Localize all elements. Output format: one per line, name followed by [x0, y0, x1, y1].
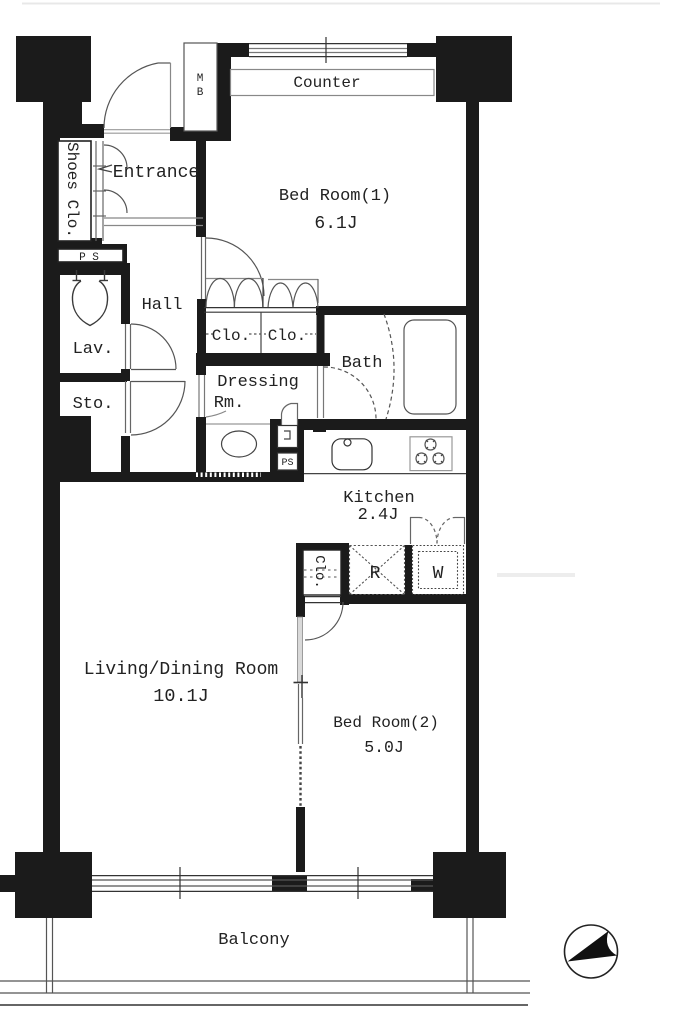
- svg-text:Bed Room(2): Bed Room(2): [333, 714, 439, 732]
- svg-text:Bath: Bath: [342, 354, 383, 373]
- svg-text:P S: P S: [79, 252, 99, 264]
- svg-text:Counter: Counter: [293, 74, 360, 92]
- svg-text:Clo.: Clo.: [311, 555, 327, 589]
- svg-text:Clo.: Clo.: [212, 327, 250, 345]
- svg-text:Rm.: Rm.: [214, 394, 245, 413]
- svg-text:2.4J: 2.4J: [358, 506, 399, 525]
- svg-text:B: B: [197, 87, 204, 99]
- svg-text:6.1J: 6.1J: [314, 214, 357, 234]
- svg-text:M: M: [197, 73, 204, 85]
- svg-text:PS: PS: [281, 458, 293, 469]
- svg-text:Dressing: Dressing: [217, 373, 299, 392]
- svg-text:Bed Room(1): Bed Room(1): [279, 187, 391, 206]
- svg-text:W: W: [433, 564, 444, 584]
- svg-text:Lav.: Lav.: [73, 340, 114, 359]
- svg-text:10.1J: 10.1J: [153, 686, 209, 707]
- svg-text:Sto.: Sto.: [73, 395, 114, 414]
- svg-text:Shoes Clo.: Shoes Clo.: [63, 142, 81, 238]
- svg-text:Clo.: Clo.: [268, 327, 306, 345]
- svg-text:R: R: [370, 564, 381, 584]
- svg-text:Balcony: Balcony: [218, 931, 289, 950]
- svg-text:5.0J: 5.0J: [364, 738, 404, 757]
- svg-text:Living/Dining Room: Living/Dining Room: [84, 660, 278, 680]
- svg-text:Hall: Hall: [142, 296, 183, 315]
- svg-text:Entrance: Entrance: [113, 163, 199, 183]
